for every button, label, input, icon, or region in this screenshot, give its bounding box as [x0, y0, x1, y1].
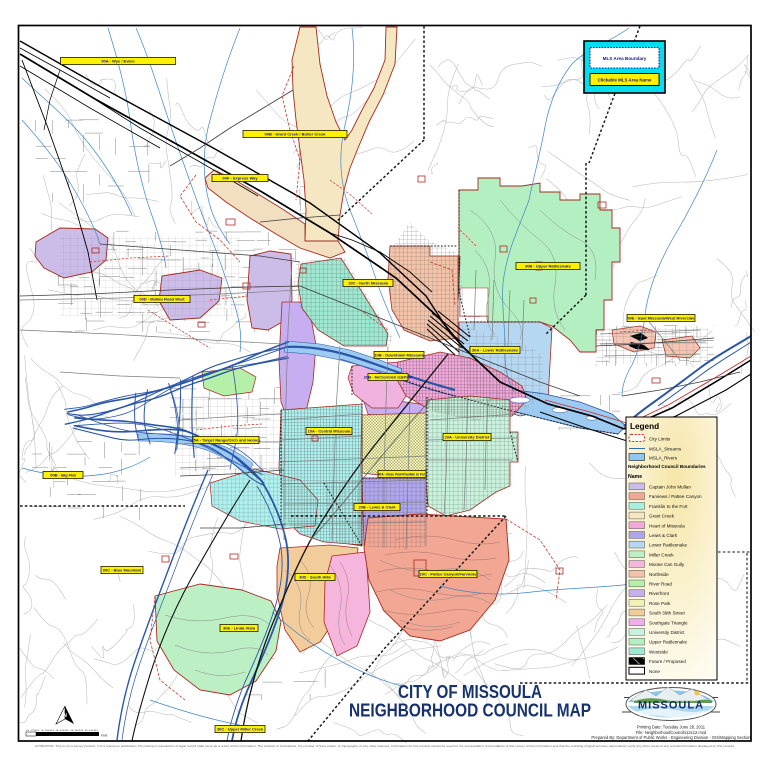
svg-text:Legend: Legend [630, 422, 659, 431]
svg-text:20A - University District: 20A - University District [445, 435, 491, 440]
svg-text:30B - Upper Rattlesnake: 30B - Upper Rattlesnake [525, 264, 572, 269]
svg-text:Heart of Missoula: Heart of Missoula [649, 523, 685, 528]
svg-text:20B - Lewis & Clark: 20B - Lewis & Clark [358, 505, 396, 510]
svg-text:NEIGHBORHOOD COUNCIL MAP: NEIGHBORHOOD COUNCIL MAP [349, 700, 591, 721]
svg-text:00A - Wye / Evaro: 00A - Wye / Evaro [101, 59, 135, 64]
svg-text:Lewis & Clark: Lewis & Clark [649, 533, 678, 538]
svg-text:00E - East Missoula/West River: 00E - East Missoula/West Riverside [627, 316, 695, 321]
svg-text:Captain John Mullan: Captain John Mullan [649, 485, 691, 490]
svg-text:Prepared By: Department of Pub: Prepared By: Department of Public Works … [591, 735, 751, 740]
svg-text:N: N [63, 713, 67, 719]
svg-text:10C - North Missoula: 10C - North Missoula [348, 281, 389, 286]
svg-text:30E - Linda Vista: 30E - Linda Vista [223, 626, 256, 631]
svg-text:30A - Lower Rattlesnake: 30A - Lower Rattlesnake [472, 348, 519, 353]
svg-text:Southgate Triangle: Southgate Triangle [649, 620, 688, 625]
svg-text:00B - Grant Creek / Butler Cre: 00B - Grant Creek / Butler Creek [265, 132, 327, 137]
svg-text:Northside: Northside [649, 572, 669, 577]
svg-text:00B - Big Flat: 00B - Big Flat [50, 473, 76, 478]
svg-text:Future / Proposed: Future / Proposed [649, 659, 686, 664]
svg-text:MSLA_Rivers: MSLA_Rivers [649, 456, 678, 461]
svg-text:University District: University District [649, 630, 685, 635]
svg-text:20C - Pattee Canyon/Farviews: 20C - Pattee Canyon/Farviews [420, 572, 478, 577]
svg-text:Feet: Feet [101, 734, 107, 738]
svg-text:Lower Rattlesnake: Lower Rattlesnake [649, 543, 687, 548]
svg-text:Farviews / Pattee Canyon: Farviews / Pattee Canyon [649, 494, 702, 499]
svg-text:Upper Rattlesnake: Upper Rattlesnake [649, 640, 687, 645]
svg-text:00F - Express Way: 00F - Express Way [222, 176, 258, 181]
svg-text:10A - Central Missoula: 10A - Central Missoula [308, 429, 352, 434]
svg-text:South 39th Street: South 39th Street [649, 611, 685, 616]
svg-text:00C - Blue Mountain: 00C - Blue Mountain [103, 568, 142, 573]
svg-text:City Limits: City Limits [649, 437, 671, 442]
svg-text:River Road: River Road [649, 582, 672, 587]
svg-text:Grant Creek: Grant Creek [649, 514, 675, 519]
svg-text:Westside: Westside [649, 649, 668, 654]
svg-text:20B - McCormick Is&Park: 20B - McCormick Is&Park [364, 375, 413, 380]
svg-text:Franklin to the Fort: Franklin to the Fort [649, 504, 688, 509]
svg-text:MSLA_Streams: MSLA_Streams [649, 446, 682, 451]
svg-text:MISSOULA: MISSOULA [638, 700, 704, 712]
svg-text:MLS Area Boundary: MLS Area Boundary [603, 56, 647, 61]
svg-text:10B - Downtown Missoula: 10B - Downtown Missoula [374, 353, 424, 358]
svg-text:0 750 1,500 3,000 4: 0 750 1,500 3,000 4,500 6,000 [26, 730, 100, 732]
svg-text:Printing Date: Tuesday June 28: Printing Date: Tuesday June 28, 2011 [637, 725, 706, 730]
svg-text:ATTENTION: This is not a surve: ATTENTION: This is not a survey product.… [35, 745, 735, 748]
svg-text:55A - Target Range/Orch and Ho: 55A - Target Range/Orch and Homes [191, 438, 261, 443]
svg-text:40A - Rose Park/Franklin to Fo: 40A - Rose Park/Franklin to Fort [378, 473, 427, 477]
svg-text:00D - Mullan Road West: 00D - Mullan Road West [139, 297, 185, 302]
svg-text:Neighborhood Council Boundarie: Neighborhood Council Boundaries [628, 464, 706, 469]
svg-text:Riverfront: Riverfront [649, 591, 670, 596]
svg-text:Name: Name [628, 474, 642, 480]
svg-text:30D - South Hills: 30D - South Hills [299, 575, 332, 580]
svg-text:None: None [649, 669, 660, 674]
svg-text:Moose Can Gully: Moose Can Gully [649, 562, 685, 567]
svg-text:Miller Creek: Miller Creek [649, 552, 674, 557]
svg-text:Rose Park: Rose Park [649, 601, 671, 606]
svg-text:30C - Upper Miller Creek: 30C - Upper Miller Creek [217, 727, 264, 732]
svg-text:Clickable MLS Area Name: Clickable MLS Area Name [598, 77, 652, 82]
